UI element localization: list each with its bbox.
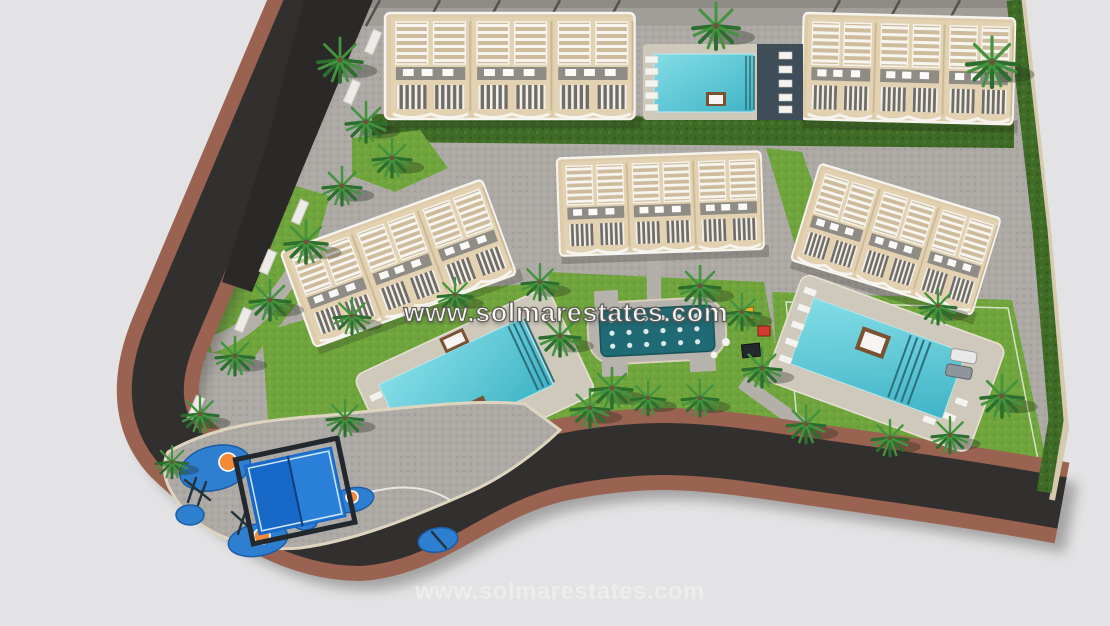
top-swimming-pool bbox=[643, 44, 803, 120]
watermark-text-faint: www.solmarestates.com bbox=[415, 578, 705, 606]
watermark-text: www.solmarestates.com bbox=[404, 298, 729, 329]
building-block-top-left bbox=[385, 13, 640, 128]
building-block-center bbox=[557, 151, 770, 264]
site-plan-render: www.solmarestates.com www.solmarestates.… bbox=[0, 0, 1110, 626]
